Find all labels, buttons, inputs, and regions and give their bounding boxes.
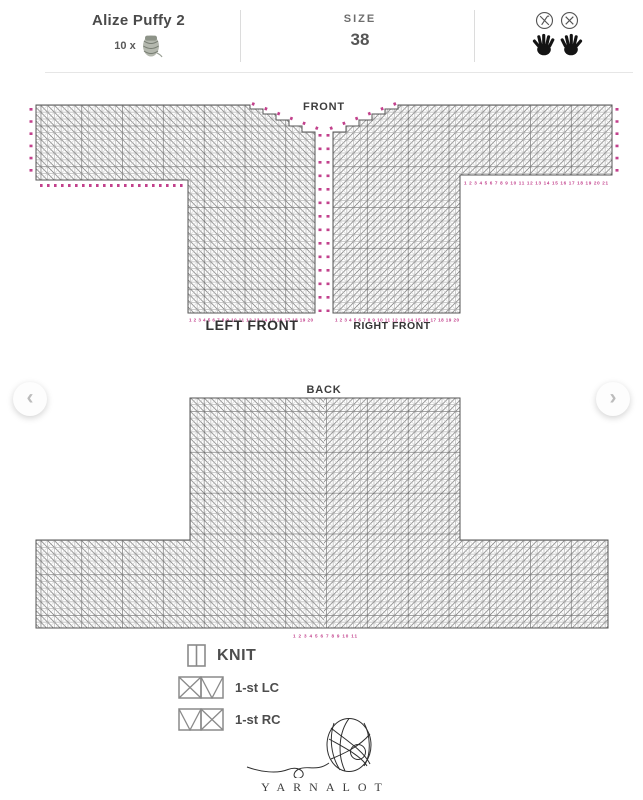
previous-page-button[interactable]: ‹ (13, 382, 47, 416)
forbidden-tools (535, 11, 579, 30)
lc-symbol-icon (178, 676, 224, 699)
left-front-piece: 1 2 3 4 5 6 7 8 9 10 11 12 13 14 15 16 1… (31, 104, 320, 334)
yarn-quantity: 10 x (114, 33, 162, 59)
hand-knitting (532, 32, 583, 56)
left-hand-icon (532, 32, 556, 56)
yarn-skein-icon (140, 33, 163, 59)
right-front-label: RIGHT FRONT (353, 320, 430, 332)
yarn-info: Alize Puffy 2 10 x (40, 8, 237, 68)
yarn-ball-icon (237, 716, 407, 778)
chevron-right-icon: › (610, 387, 617, 408)
right-front-piece: 1 2 3 4 5 6 7 8 9 10 11 12 13 14 15 16 1… (328, 104, 617, 333)
knit-symbol-icon (187, 644, 206, 667)
header-bottom-border (45, 72, 633, 73)
yarn-name: Alize Puffy 2 (92, 12, 185, 29)
header: Alize Puffy 2 10 x SIZE 38 (0, 0, 643, 74)
legend-item-knit: KNIT (187, 644, 281, 667)
front-chart-title: FRONT (303, 101, 345, 113)
right-hand-icon (559, 32, 583, 56)
no-knitting-needles-icon (560, 11, 579, 30)
no-crochet-hook-icon (535, 11, 554, 30)
lc-label: 1-st LC (235, 680, 279, 695)
size-info: SIZE 38 (243, 8, 477, 68)
knitting-charts-svg: FRONT 1 2 3 4 5 6 7 8 9 10 11 12 13 14 1… (0, 85, 643, 645)
size-label: SIZE (344, 13, 376, 25)
brand-logo: YARNALOT (0, 716, 643, 795)
back-stitch-numbers: 1 2 3 4 5 6 7 8 9 10 11 (293, 634, 357, 639)
back-piece: 1 2 3 4 5 6 7 8 9 10 11 (36, 398, 608, 639)
header-divider (474, 10, 475, 62)
legend-item-lc: 1-st LC (178, 676, 281, 699)
right-sleeve-stitch-numbers: 1 2 3 4 5 6 7 8 9 10 11 12 13 14 15 16 1… (464, 181, 608, 186)
left-front-label: LEFT FRONT (205, 317, 298, 333)
yarn-quantity-label: 10 x (114, 40, 135, 52)
back-chart-title: BACK (307, 384, 342, 396)
chevron-left-icon: ‹ (27, 387, 34, 408)
brand-name: YARNALOT (261, 780, 390, 795)
technique-icons (477, 8, 637, 68)
size-value: 38 (351, 30, 370, 50)
knit-label: KNIT (217, 647, 256, 665)
header-divider (240, 10, 241, 62)
next-page-button[interactable]: › (596, 382, 630, 416)
pattern-page: Alize Puffy 2 10 x SIZE 38 (0, 0, 643, 800)
